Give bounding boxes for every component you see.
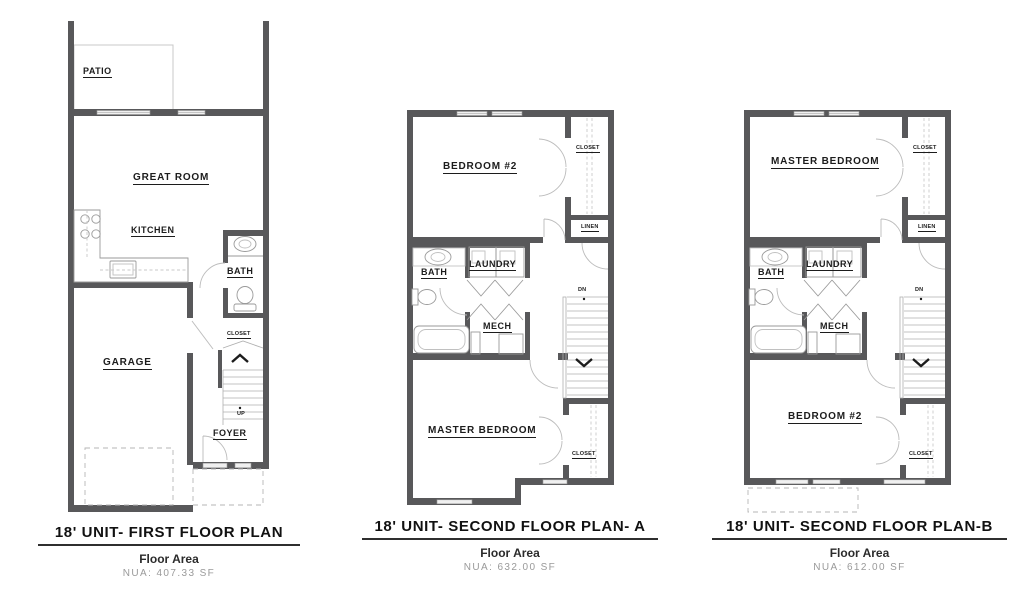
room-label-kitchen: KITCHEN bbox=[131, 226, 175, 237]
mech-equipment-icon bbox=[471, 332, 480, 354]
room-label-bedroom2: BEDROOM #2 bbox=[443, 162, 517, 174]
closet-door-icon bbox=[223, 341, 263, 348]
bath-fixtures bbox=[412, 248, 469, 353]
plan-first-floor: PATIO GREAT ROOM KITCHEN BATH CLOSET GAR… bbox=[55, 5, 285, 515]
room-label-garage: GARAGE bbox=[103, 358, 152, 370]
stairs-down-icon bbox=[900, 297, 945, 398]
room-label-closet-bottom: CLOSET bbox=[572, 452, 596, 459]
room-label-closet-top: CLOSET bbox=[913, 146, 937, 153]
roof-outline-dashed bbox=[748, 488, 858, 512]
stairs-down-icon bbox=[563, 297, 608, 398]
plan-title: 18' UNIT- SECOND FLOOR PLAN-B bbox=[712, 518, 1007, 540]
master-closet-door-arc bbox=[539, 417, 562, 440]
room-label-mech: MECH bbox=[483, 322, 512, 333]
hall-door-arc bbox=[919, 243, 945, 269]
nua-value: NUA: 407.33 SF bbox=[38, 568, 300, 579]
room-label-mech: MECH bbox=[820, 322, 849, 333]
stair-start-dot bbox=[239, 407, 241, 409]
plan-second-floor-b: MASTER BEDROOM CLOSET LINEN BATH LAUNDRY… bbox=[742, 100, 954, 515]
room-label-up: UP bbox=[237, 412, 245, 418]
room-label-bath: BATH bbox=[421, 268, 447, 279]
room-label-laundry: LAUNDRY bbox=[806, 260, 853, 271]
bath-fixtures bbox=[749, 248, 806, 353]
caption-second-floor-b: 18' UNIT- SECOND FLOOR PLAN-B Floor Area… bbox=[712, 518, 1007, 573]
room-label-closet: CLOSET bbox=[227, 332, 251, 339]
nua-value: NUA: 632.00 SF bbox=[362, 562, 658, 573]
stair-start-dot bbox=[920, 298, 922, 300]
closet-rod-dashed bbox=[924, 118, 933, 477]
room-label-dn: DN bbox=[915, 288, 923, 294]
plan-second-floor-a: BEDROOM #2 CLOSET LINEN BATH LAUNDRY MEC… bbox=[405, 100, 617, 515]
dashed-outlines bbox=[85, 448, 263, 505]
plan-title: 18' UNIT- FIRST FLOOR PLAN bbox=[38, 524, 300, 546]
room-label-closet-top: CLOSET bbox=[576, 146, 600, 153]
closet-double-door-arc bbox=[539, 139, 566, 167]
stair-start-dot bbox=[583, 298, 585, 300]
mech-equipment-icon bbox=[808, 332, 817, 354]
plan-title: 18' UNIT- SECOND FLOOR PLAN- A bbox=[362, 518, 658, 540]
closet-door-arc bbox=[876, 417, 899, 440]
bath-door-arc bbox=[777, 288, 804, 315]
garage-door-dashed bbox=[85, 448, 173, 505]
room-label-bath: BATH bbox=[227, 267, 253, 278]
room-label-linen: LINEN bbox=[581, 225, 599, 232]
master-door-arc bbox=[867, 360, 895, 388]
room-label-bedroom2: BEDROOM #2 bbox=[788, 412, 862, 424]
closet-double-door-arc bbox=[876, 139, 903, 167]
nua-value: NUA: 612.00 SF bbox=[712, 562, 1007, 573]
kitchen-counter-icon bbox=[74, 210, 188, 282]
room-label-foyer: FOYER bbox=[213, 429, 247, 440]
stove-burner-icon bbox=[81, 215, 89, 223]
room-label-bath: BATH bbox=[758, 268, 784, 279]
room-label-dn: DN bbox=[578, 288, 586, 294]
room-label-laundry: LAUNDRY bbox=[469, 260, 516, 271]
door-arcs bbox=[440, 139, 608, 464]
hall-door-leaf bbox=[192, 321, 213, 349]
bath-door-arc bbox=[200, 263, 225, 288]
toilet-icon bbox=[237, 287, 253, 304]
room-label-master-bedroom: MASTER BEDROOM bbox=[771, 157, 879, 169]
toilet-icon bbox=[418, 290, 436, 305]
up-arrow-icon bbox=[232, 355, 248, 362]
room-label-closet-bottom: CLOSET bbox=[909, 452, 933, 459]
room-label-great-room: GREAT ROOM bbox=[133, 173, 209, 185]
hall-door-arc bbox=[582, 243, 608, 269]
patio-outline bbox=[74, 45, 173, 113]
floor-area-label: Floor Area bbox=[38, 552, 300, 566]
bedroom-door-arc bbox=[881, 219, 902, 240]
bath-door-arc bbox=[440, 288, 467, 315]
closet-rod-dashed bbox=[587, 118, 596, 477]
toilet-icon bbox=[755, 290, 773, 305]
floor-area-label: Floor Area bbox=[712, 546, 1007, 560]
room-label-linen: LINEN bbox=[918, 225, 936, 232]
caption-first-floor: 18' UNIT- FIRST FLOOR PLAN Floor Area NU… bbox=[38, 524, 300, 579]
room-label-patio: PATIO bbox=[83, 67, 112, 78]
floorplan-sheet: PATIO GREAT ROOM KITCHEN BATH CLOSET GAR… bbox=[0, 0, 1024, 590]
stoop-dashed bbox=[193, 469, 263, 505]
plan-first-floor-drawing bbox=[55, 5, 285, 515]
room-label-master-bedroom: MASTER BEDROOM bbox=[428, 426, 536, 438]
master-door-arc bbox=[530, 360, 558, 388]
floor-area-label: Floor Area bbox=[362, 546, 658, 560]
bedroom-door-arc bbox=[544, 219, 565, 240]
caption-second-floor-a: 18' UNIT- SECOND FLOOR PLAN- A Floor Are… bbox=[362, 518, 658, 573]
kitchen-sink-icon bbox=[110, 261, 136, 278]
